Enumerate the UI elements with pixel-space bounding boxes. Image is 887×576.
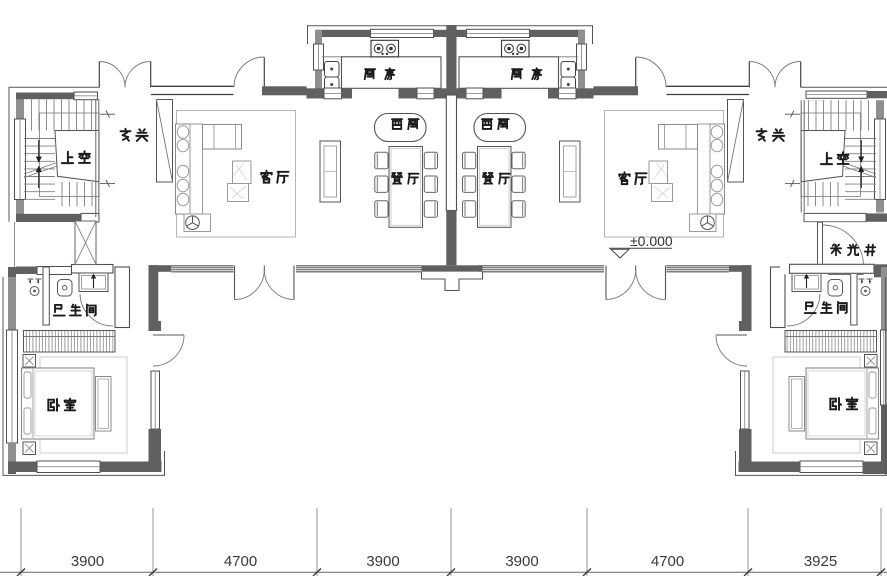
svg-text:±0.000: ±0.000 [630,233,673,249]
svg-text:3900: 3900 [71,553,104,570]
svg-text:3925: 3925 [804,553,837,570]
svg-text:3900: 3900 [366,553,399,570]
svg-text:3900: 3900 [505,553,538,570]
svg-text:4700: 4700 [651,553,684,570]
svg-text:4700: 4700 [224,553,257,570]
